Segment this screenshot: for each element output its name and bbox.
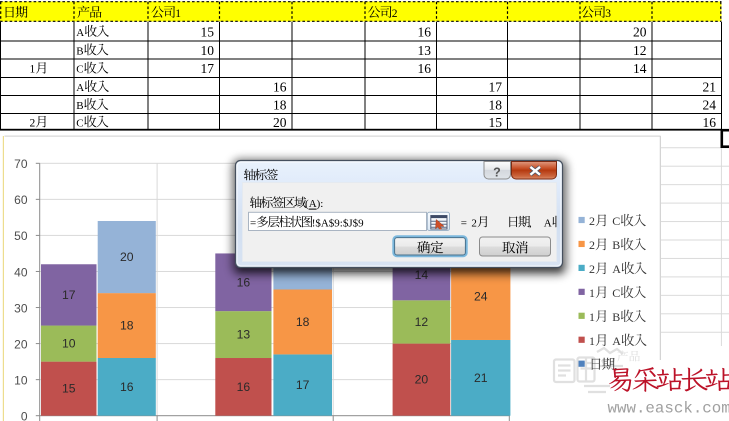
svg-text:A: A <box>544 217 552 229</box>
svg-text:10: 10 <box>201 43 215 58</box>
svg-text:1: 1 <box>175 8 181 20</box>
svg-text:15: 15 <box>201 24 215 39</box>
svg-text:16: 16 <box>703 115 717 130</box>
svg-text:60: 60 <box>14 193 28 207</box>
svg-text:18: 18 <box>489 98 503 113</box>
svg-text:20: 20 <box>415 373 429 387</box>
svg-text:17: 17 <box>201 61 215 76</box>
svg-text:10: 10 <box>14 373 28 387</box>
svg-text:0: 0 <box>21 410 28 421</box>
svg-text:16: 16 <box>418 61 432 76</box>
svg-text:20: 20 <box>120 250 134 264</box>
svg-text:17: 17 <box>62 288 76 302</box>
svg-text:50: 50 <box>14 229 28 243</box>
svg-text:16: 16 <box>237 380 251 394</box>
svg-text:12: 12 <box>633 43 647 58</box>
svg-text:16: 16 <box>237 275 251 289</box>
svg-text:2: 2 <box>471 217 477 229</box>
svg-text:A: A <box>76 82 84 94</box>
svg-text:,: , <box>529 217 532 229</box>
svg-text:2: 2 <box>30 117 36 129</box>
svg-text:12: 12 <box>415 315 429 329</box>
svg-text:15: 15 <box>62 382 76 396</box>
svg-text:21: 21 <box>474 371 488 385</box>
svg-text:16: 16 <box>120 380 134 394</box>
svg-text:20: 20 <box>273 115 287 130</box>
svg-text:B: B <box>76 100 83 112</box>
svg-text:13: 13 <box>237 328 251 342</box>
svg-text:14: 14 <box>633 61 647 76</box>
svg-text:40: 40 <box>14 265 28 279</box>
svg-text:20: 20 <box>14 337 28 351</box>
svg-text:30: 30 <box>14 301 28 315</box>
svg-text:21: 21 <box>703 80 717 95</box>
svg-text:17: 17 <box>296 378 310 392</box>
svg-text:18: 18 <box>296 315 310 329</box>
svg-text:www.easck.com: www.easck.com <box>608 400 729 418</box>
svg-text:16: 16 <box>418 24 432 39</box>
svg-text:15: 15 <box>489 115 503 130</box>
svg-text:10: 10 <box>62 337 76 351</box>
svg-text:?: ? <box>493 166 501 180</box>
svg-text:C: C <box>76 117 83 129</box>
svg-text:=: = <box>461 217 467 229</box>
svg-text:70: 70 <box>14 157 28 171</box>
svg-text:20: 20 <box>633 24 647 39</box>
svg-text:(A):: (A): <box>305 198 323 210</box>
svg-text:13: 13 <box>418 43 432 58</box>
svg-text:2: 2 <box>392 8 398 20</box>
svg-text:24: 24 <box>703 98 717 113</box>
svg-text:24: 24 <box>474 290 488 304</box>
svg-text:3: 3 <box>605 8 611 20</box>
svg-text:16: 16 <box>273 80 287 95</box>
svg-text:B: B <box>76 45 83 57</box>
svg-text:18: 18 <box>273 98 287 113</box>
svg-text:18: 18 <box>120 319 134 333</box>
svg-text:1: 1 <box>30 64 36 76</box>
svg-text:A: A <box>76 27 84 39</box>
svg-text:C: C <box>76 64 83 76</box>
svg-text:17: 17 <box>489 80 503 95</box>
